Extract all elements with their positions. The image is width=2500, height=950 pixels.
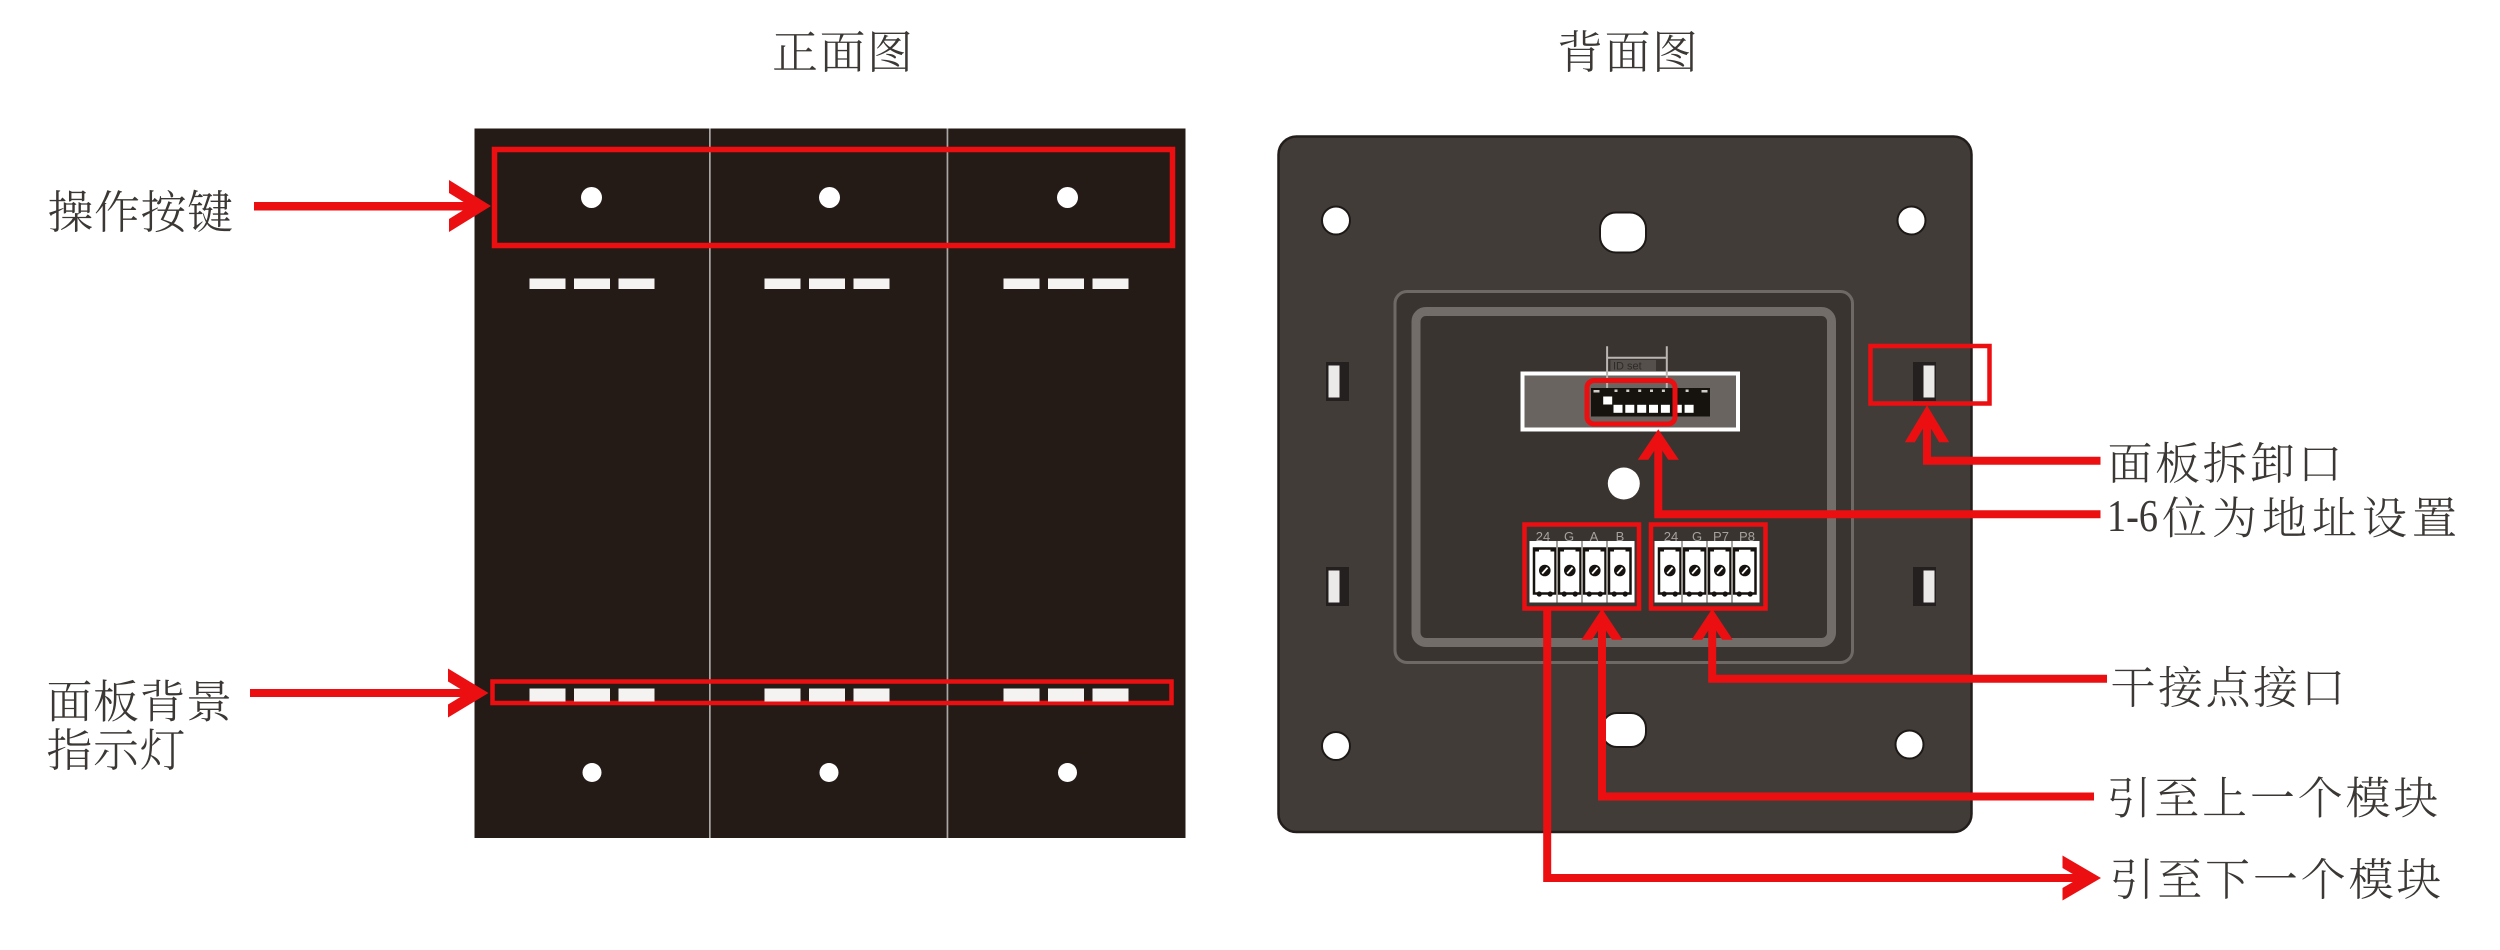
svg-text:1-6: 1-6 (2107, 490, 2158, 541)
